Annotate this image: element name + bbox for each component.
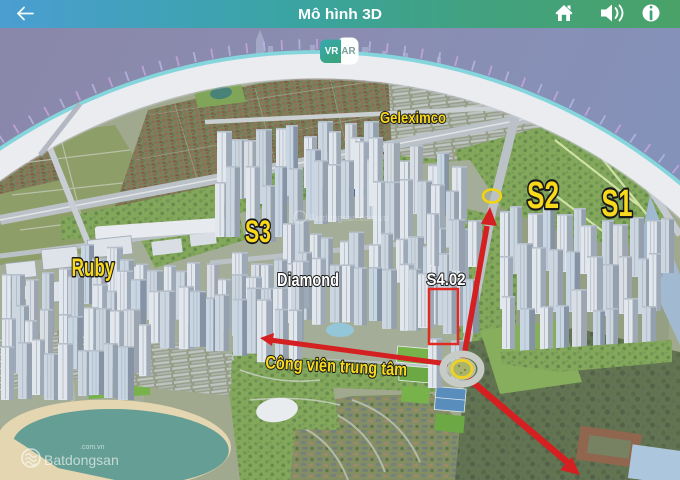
svg-text:Batdongsan.com.vn: Batdongsan.com.vn [309, 213, 389, 223]
svg-text:Mô hình 3D: Mô hình 3D [298, 6, 382, 23]
svg-text:.com.vn: .com.vn [80, 444, 105, 451]
svg-text:S3: S3 [245, 214, 271, 250]
svg-text:Geleximco: Geleximco [380, 110, 446, 127]
svg-text:Ruby: Ruby [72, 254, 115, 282]
svg-text:S1: S1 [602, 182, 633, 224]
svg-text:S2: S2 [527, 174, 559, 216]
svg-text:S4.02: S4.02 [427, 270, 466, 289]
svg-text:Diamond: Diamond [277, 270, 339, 290]
svg-text:VR: VR [325, 46, 339, 57]
svg-text:AR: AR [341, 46, 355, 57]
svg-text:Batdongsan: Batdongsan [44, 452, 119, 468]
